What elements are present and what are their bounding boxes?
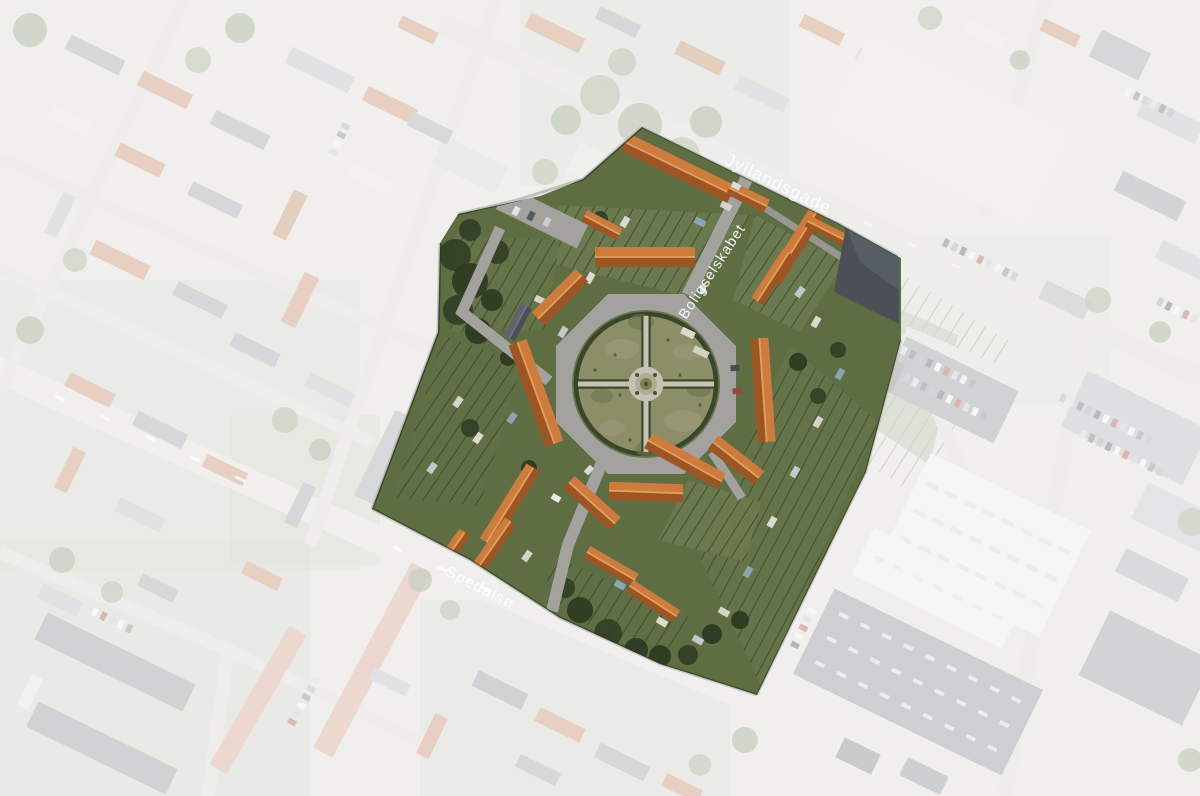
tree (459, 219, 481, 241)
bed-dot (653, 391, 657, 395)
aerial-view: Jyllandsgade Boligselskabet Spedalsø (0, 0, 1200, 796)
tree (461, 419, 479, 437)
bush (618, 393, 621, 396)
fountain-center (644, 382, 648, 386)
tree (702, 624, 722, 644)
grass-patch (664, 410, 702, 432)
bush (628, 438, 631, 441)
bush (678, 373, 681, 376)
tree (678, 645, 698, 665)
tree (481, 289, 503, 311)
fountain (629, 367, 664, 402)
car (730, 365, 739, 372)
house-row (595, 247, 695, 267)
bush (593, 368, 596, 371)
house-row (609, 482, 684, 503)
roof-light-side (595, 247, 695, 257)
bush (698, 403, 701, 406)
bed-dot (653, 373, 657, 377)
tree (830, 342, 846, 358)
bed-dot (635, 391, 639, 395)
grass-patch (599, 420, 625, 436)
bush (613, 353, 616, 356)
tree (567, 597, 593, 623)
grass-patch (605, 339, 639, 359)
roof-ridge (595, 256, 695, 258)
tree (789, 353, 807, 371)
tree (731, 611, 749, 629)
bush (666, 338, 669, 341)
grass-patch (591, 389, 613, 403)
car (732, 388, 741, 395)
roof-dark-side (595, 257, 695, 267)
tree (810, 388, 826, 404)
aerial-figure: Jyllandsgade Boligselskabet Spedalsø (0, 0, 1200, 796)
bed-dot (635, 373, 639, 377)
